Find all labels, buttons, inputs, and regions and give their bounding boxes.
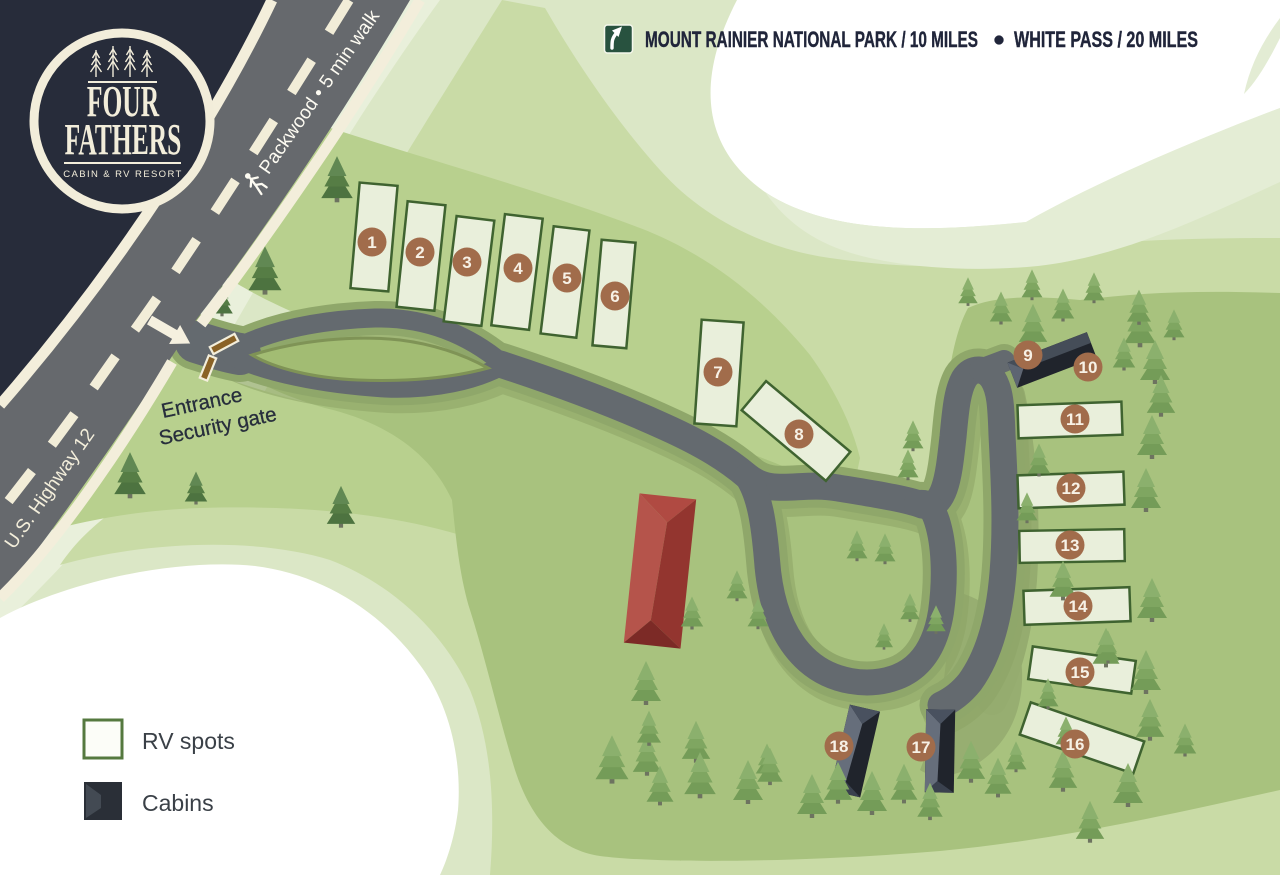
- svg-text:MOUNT RAINIER NATIONAL PARK /: MOUNT RAINIER NATIONAL PARK / 10 MILES: [645, 27, 978, 52]
- svg-text:13: 13: [1061, 536, 1080, 555]
- svg-text:FATHERS: FATHERS: [65, 115, 182, 164]
- svg-text:8: 8: [794, 425, 803, 444]
- svg-text:15: 15: [1071, 663, 1090, 682]
- svg-text:9: 9: [1023, 346, 1032, 365]
- svg-text:10: 10: [1079, 358, 1098, 377]
- svg-text:18: 18: [830, 737, 849, 756]
- svg-text:6: 6: [610, 287, 619, 306]
- svg-text:Cabins: Cabins: [142, 790, 214, 816]
- svg-text:12: 12: [1062, 479, 1081, 498]
- svg-text:14: 14: [1069, 597, 1088, 616]
- svg-text:5: 5: [562, 269, 571, 288]
- svg-text:WHITE PASS / 20 MILES: WHITE PASS / 20 MILES: [1014, 27, 1198, 52]
- svg-text:1: 1: [367, 233, 376, 252]
- svg-text:3: 3: [462, 253, 471, 272]
- svg-text:4: 4: [513, 259, 523, 278]
- svg-text:CABIN & RV RESORT: CABIN & RV RESORT: [63, 169, 183, 180]
- svg-text:16: 16: [1066, 735, 1085, 754]
- svg-text:17: 17: [912, 738, 931, 757]
- svg-text:2: 2: [415, 243, 424, 262]
- svg-text:11: 11: [1066, 410, 1084, 429]
- svg-text:RV spots: RV spots: [142, 728, 235, 754]
- svg-text:7: 7: [713, 363, 722, 382]
